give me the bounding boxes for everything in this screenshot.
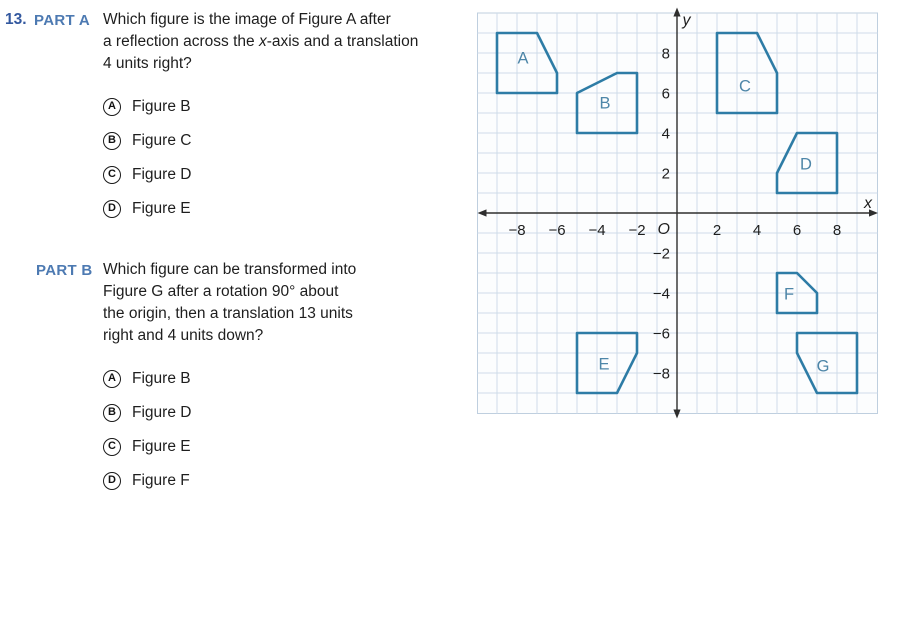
- option-letter-badge: C: [103, 438, 121, 456]
- part-a-question-line: Which figure is the image of Figure A af…: [103, 9, 418, 31]
- part-a-options: A Figure B B Figure C C Figure D D Figur…: [103, 96, 191, 219]
- option-label: Figure C: [132, 132, 191, 150]
- part-b-option-4[interactable]: D Figure F: [103, 470, 191, 491]
- figure-A-label: A: [517, 50, 528, 68]
- figure-C-label: C: [739, 78, 751, 96]
- option-letter-badge: A: [103, 98, 121, 116]
- option-letter-badge: B: [103, 404, 121, 422]
- y-axis-arrow-up: [673, 8, 680, 17]
- y-tick-label: 8: [662, 46, 670, 63]
- y-axis-label: y: [682, 12, 692, 29]
- x-tick-label: −4: [588, 222, 605, 239]
- option-letter-badge: C: [103, 166, 121, 184]
- part-b-question-line: the origin, then a translation 13 units: [103, 303, 356, 325]
- option-label: Figure D: [132, 166, 191, 184]
- option-label: Figure B: [132, 370, 191, 388]
- figure-G-label: G: [817, 358, 830, 376]
- part-b-question-line: Figure G after a rotation 90° about: [103, 281, 356, 303]
- y-tick-label: 2: [662, 166, 670, 183]
- x-tick-label: 6: [793, 222, 801, 239]
- option-label: Figure D: [132, 404, 191, 422]
- part-a-option-4[interactable]: D Figure E: [103, 198, 191, 219]
- option-letter-badge: B: [103, 132, 121, 150]
- part-a-question-text: Which figure is the image of Figure A af…: [103, 9, 418, 75]
- y-tick-label: −8: [653, 366, 670, 383]
- figure-E-label: E: [598, 356, 609, 374]
- coordinate-grid: −8−6−4−224688642−2−4−6−8yxOABCDEFG: [477, 6, 881, 420]
- y-tick-label: 4: [662, 126, 670, 143]
- figure-D-label: D: [800, 156, 812, 174]
- question-number: 13.: [5, 11, 27, 29]
- part-b-question-line: Which figure can be transformed into: [103, 259, 356, 281]
- worksheet-page: 13. PART A Which figure is the image of …: [0, 0, 902, 635]
- x-tick-label: 4: [753, 222, 761, 239]
- x-tick-label: 2: [713, 222, 721, 239]
- part-b-label: PART B: [36, 262, 93, 279]
- figure-F-label: F: [784, 286, 794, 304]
- x-tick-label: −8: [508, 222, 525, 239]
- part-b-question-text: Which figure can be transformed into Fig…: [103, 259, 356, 347]
- part-b-option-2[interactable]: B Figure D: [103, 402, 191, 423]
- part-a-option-1[interactable]: A Figure B: [103, 96, 191, 117]
- part-b-question-line: right and 4 units down?: [103, 325, 356, 347]
- part-a-question-line: 4 units right?: [103, 53, 418, 75]
- part-a-option-2[interactable]: B Figure C: [103, 130, 191, 151]
- option-label: Figure F: [132, 472, 190, 490]
- option-label: Figure E: [132, 200, 191, 218]
- part-a-question-line: a reflection across the x-axis and a tra…: [103, 31, 418, 53]
- x-tick-label: −2: [628, 222, 645, 239]
- option-letter-badge: A: [103, 370, 121, 388]
- y-tick-label: −2: [653, 246, 670, 263]
- option-letter-badge: D: [103, 472, 121, 490]
- figure-B-label: B: [599, 95, 610, 113]
- part-b-option-1[interactable]: A Figure B: [103, 368, 191, 389]
- x-axis-label: x: [863, 195, 873, 212]
- part-b-option-3[interactable]: C Figure E: [103, 436, 191, 457]
- part-b-options: A Figure B B Figure D C Figure E D Figur…: [103, 368, 191, 491]
- x-tick-label: 8: [833, 222, 841, 239]
- option-letter-badge: D: [103, 200, 121, 218]
- x-tick-label: −6: [548, 222, 565, 239]
- part-a-label: PART A: [34, 12, 90, 29]
- y-tick-label: 6: [662, 86, 670, 103]
- option-label: Figure B: [132, 98, 191, 116]
- y-tick-label: −4: [653, 286, 670, 303]
- y-tick-label: −6: [653, 326, 670, 343]
- origin-label: O: [658, 221, 670, 238]
- coordinate-grid-svg: −8−6−4−224688642−2−4−6−8yxOABCDEFG: [477, 6, 881, 420]
- part-a-option-3[interactable]: C Figure D: [103, 164, 191, 185]
- option-label: Figure E: [132, 438, 191, 456]
